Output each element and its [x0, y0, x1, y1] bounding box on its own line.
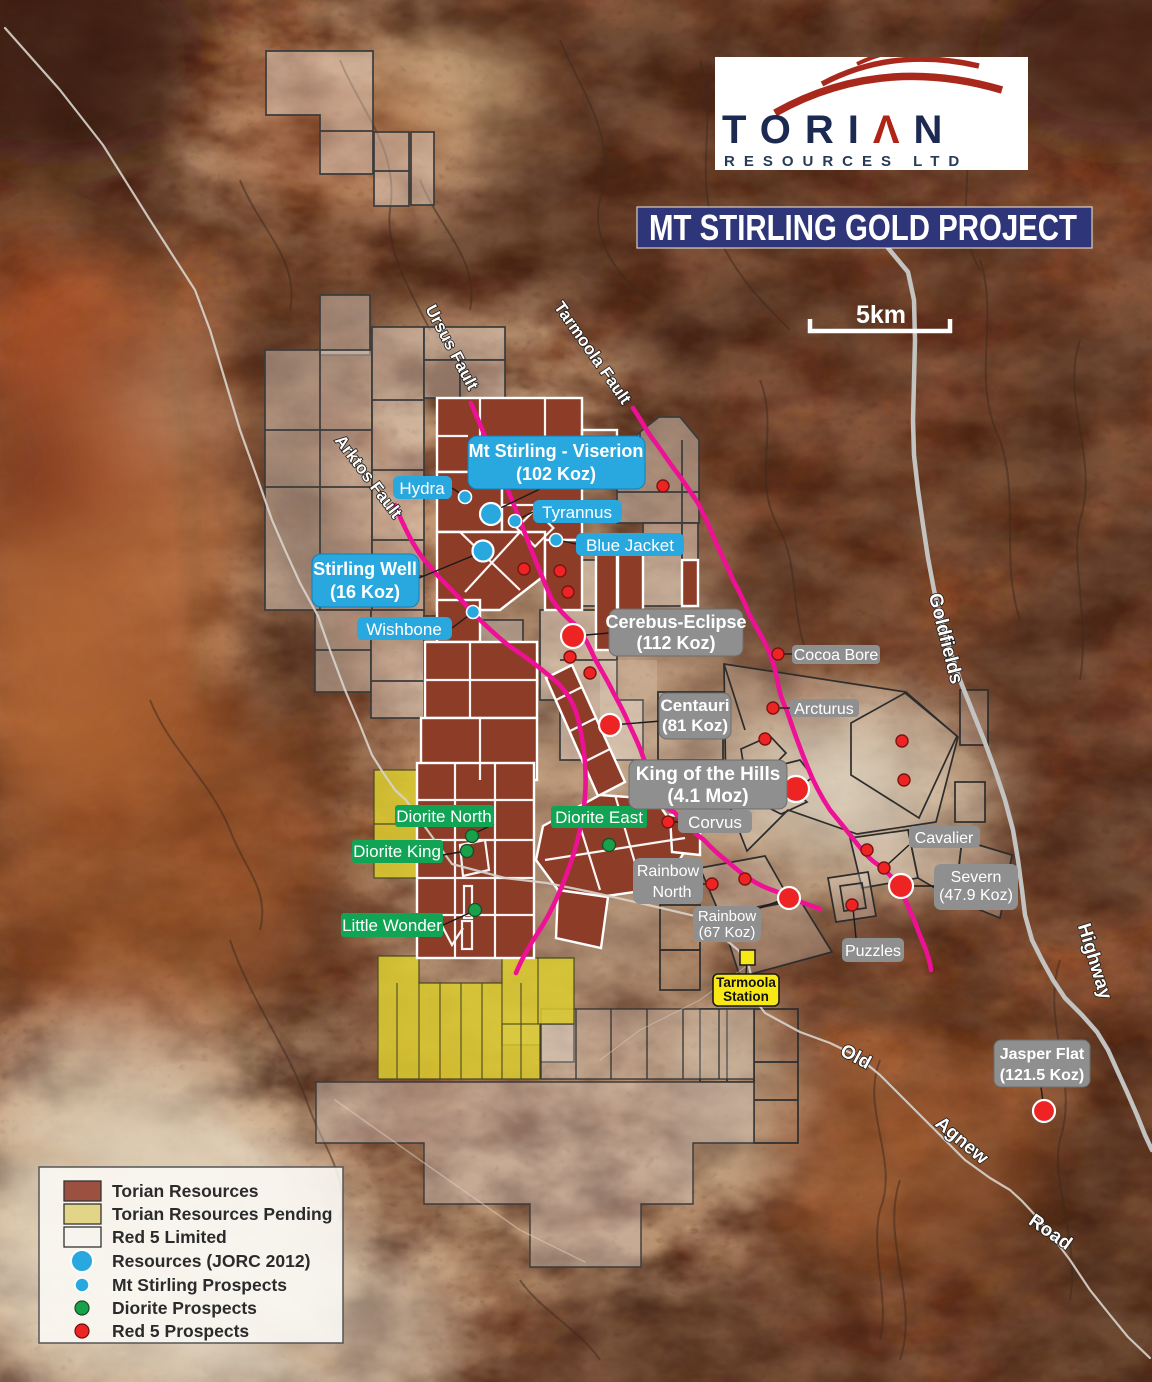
svg-text:Cerebus-Eclipse: Cerebus-Eclipse [605, 612, 746, 632]
svg-text:(102 Koz): (102 Koz) [516, 464, 596, 484]
svg-text:Arcturus: Arcturus [794, 701, 854, 718]
svg-text:Rainbow: Rainbow [698, 908, 757, 925]
svg-text:Cavalier: Cavalier [915, 830, 974, 847]
svg-text:Resources (JORC 2012): Resources (JORC 2012) [112, 1251, 310, 1271]
svg-text:Wishbone: Wishbone [366, 620, 442, 639]
svg-text:(16 Koz): (16 Koz) [330, 582, 400, 602]
svg-text:Torian Resources: Torian Resources [112, 1181, 259, 1201]
svg-text:Diorite East: Diorite East [555, 808, 643, 827]
svg-text:Diorite Prospects: Diorite Prospects [112, 1298, 257, 1318]
svg-text:Mt Stirling - Viserion: Mt Stirling - Viserion [469, 441, 644, 461]
svg-text:Red 5 Prospects: Red 5 Prospects [112, 1321, 249, 1341]
svg-text:MT STIRLING GOLD PROJECT: MT STIRLING GOLD PROJECT [649, 207, 1077, 248]
svg-text:North: North [652, 884, 691, 901]
svg-text:TORIΛN: TORIΛN [722, 108, 956, 152]
svg-text:Corvus: Corvus [688, 813, 742, 832]
svg-text:Torian Resources Pending: Torian Resources Pending [112, 1204, 332, 1224]
svg-text:Jasper Flat: Jasper Flat [1000, 1046, 1085, 1063]
svg-text:RESOURCES LTD: RESOURCES LTD [724, 153, 968, 170]
svg-text:Tarmoola: Tarmoola [716, 975, 776, 990]
svg-text:Mt Stirling Prospects: Mt Stirling Prospects [112, 1275, 287, 1295]
svg-text:(112 Koz): (112 Koz) [636, 633, 715, 653]
svg-text:King of the Hills: King of the Hills [636, 764, 781, 785]
svg-text:Severn: Severn [951, 869, 1002, 886]
svg-text:Puzzles: Puzzles [845, 943, 901, 960]
svg-text:Diorite North: Diorite North [396, 807, 491, 826]
svg-text:(121.5 Koz): (121.5 Koz) [1000, 1067, 1084, 1084]
svg-text:Stirling Well: Stirling Well [313, 559, 417, 579]
svg-text:Little Wonder: Little Wonder [342, 916, 442, 935]
svg-text:(81 Koz): (81 Koz) [662, 716, 728, 735]
svg-text:Tyrannus: Tyrannus [542, 503, 612, 522]
svg-text:Cocoa Bore: Cocoa Bore [794, 647, 879, 664]
svg-text:(67 Koz): (67 Koz) [699, 924, 756, 941]
svg-text:Diorite King: Diorite King [353, 842, 441, 861]
svg-text:Rainbow: Rainbow [637, 863, 700, 880]
svg-text:Hydra: Hydra [399, 479, 445, 498]
svg-text:(47.9 Koz): (47.9 Koz) [939, 887, 1013, 904]
svg-text:5km: 5km [856, 301, 906, 329]
svg-text:Centauri: Centauri [661, 696, 730, 715]
svg-text:Red 5 Limited: Red 5 Limited [112, 1227, 227, 1247]
svg-text:(4.1 Moz): (4.1 Moz) [667, 786, 748, 807]
svg-text:Blue Jacket: Blue Jacket [586, 536, 674, 555]
svg-text:Station: Station [723, 989, 769, 1004]
